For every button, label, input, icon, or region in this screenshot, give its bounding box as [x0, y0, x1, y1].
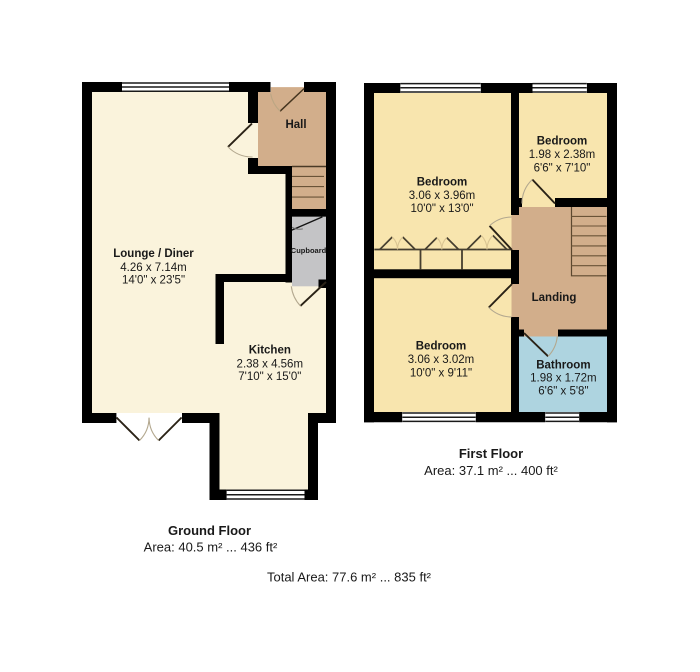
svg-text:Kitchen: Kitchen — [249, 345, 291, 357]
svg-text:1.98 x 1.72m: 1.98 x 1.72m — [530, 373, 596, 385]
svg-text:Bedroom: Bedroom — [416, 340, 466, 352]
svg-text:Hall: Hall — [285, 119, 306, 131]
svg-text:Bedroom: Bedroom — [417, 177, 467, 189]
svg-text:Area: 37.1 m² ... 400 ft²: Area: 37.1 m² ... 400 ft² — [424, 463, 558, 478]
svg-text:10'0" x 9'11": 10'0" x 9'11" — [410, 368, 472, 380]
svg-text:1.98 x 2.38m: 1.98 x 2.38m — [529, 149, 595, 161]
svg-text:Cupboard: Cupboard — [291, 246, 327, 255]
svg-text:3.06 x 3.02m: 3.06 x 3.02m — [408, 354, 474, 366]
svg-text:4.26 x 7.14m: 4.26 x 7.14m — [120, 262, 186, 274]
svg-text:3.06 x 3.96m: 3.06 x 3.96m — [409, 190, 475, 202]
svg-text:6'6" x 5'8": 6'6" x 5'8" — [538, 385, 588, 397]
svg-text:Bedroom: Bedroom — [537, 136, 587, 148]
svg-text:10'0" x 13'0": 10'0" x 13'0" — [410, 203, 473, 215]
svg-text:Ground Floor: Ground Floor — [168, 523, 251, 538]
svg-text:Total Area: 77.6 m² ... 835 ft: Total Area: 77.6 m² ... 835 ft² — [267, 570, 432, 585]
svg-text:Area: 40.5 m² ... 436 ft²: Area: 40.5 m² ... 436 ft² — [144, 540, 278, 555]
svg-text:2.38 x 4.56m: 2.38 x 4.56m — [237, 359, 303, 371]
svg-text:First Floor: First Floor — [459, 446, 523, 461]
svg-text:14'0" x 23'5": 14'0" x 23'5" — [122, 274, 185, 286]
svg-text:7'10" x 15'0": 7'10" x 15'0" — [238, 371, 301, 383]
svg-text:6'6" x 7'10": 6'6" x 7'10" — [534, 162, 591, 174]
svg-text:Landing: Landing — [532, 292, 577, 304]
svg-text:Lounge / Diner: Lounge / Diner — [113, 248, 194, 260]
svg-text:Bathroom: Bathroom — [536, 360, 590, 372]
